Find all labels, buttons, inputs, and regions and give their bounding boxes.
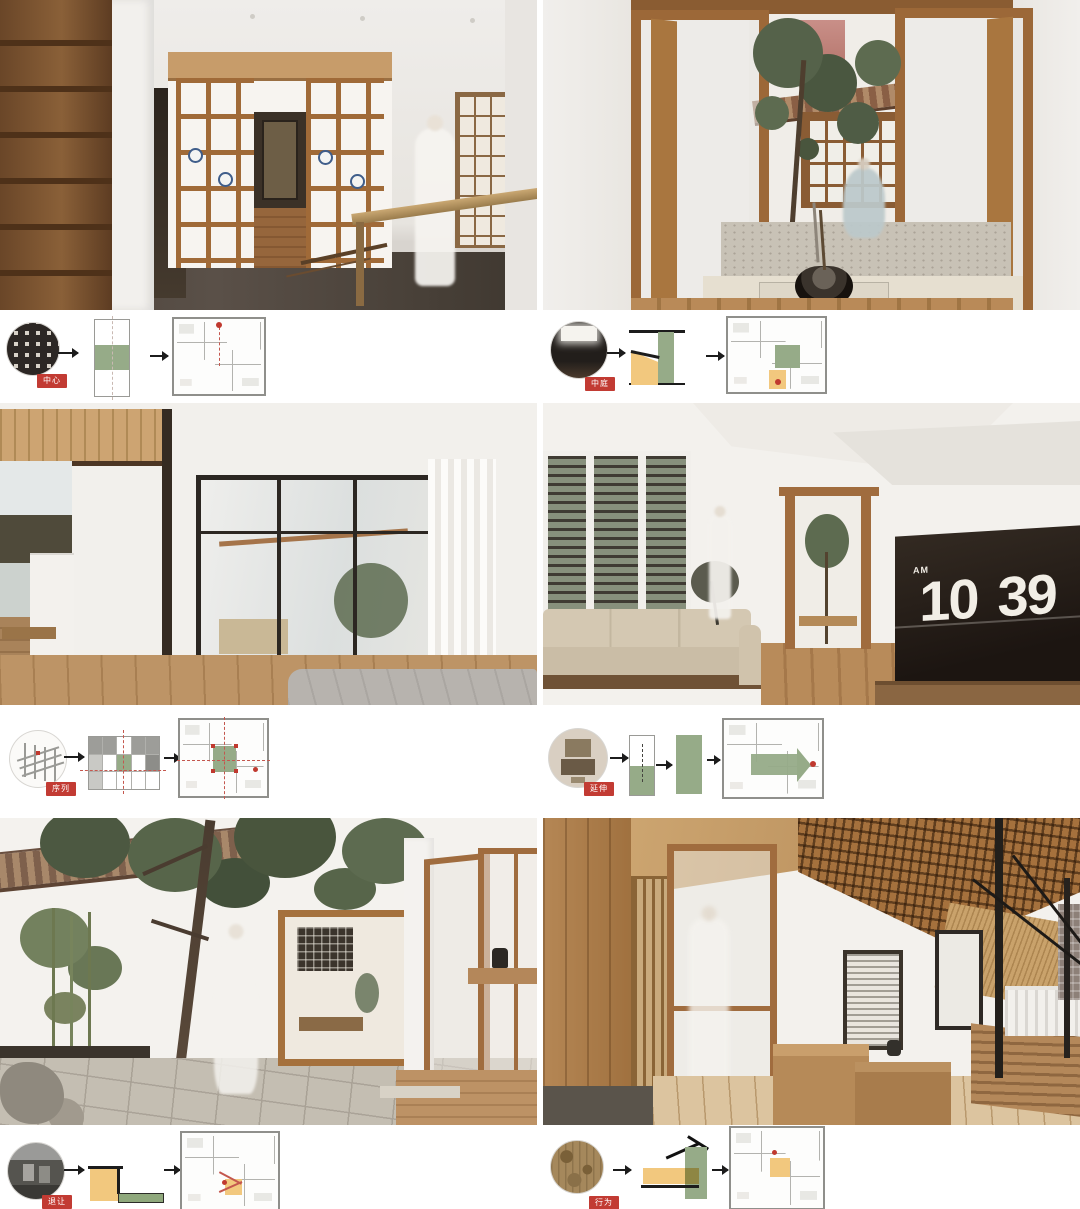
grid-axis-vertical bbox=[123, 730, 124, 794]
plan-red-tick bbox=[234, 744, 238, 748]
white-column bbox=[112, 0, 154, 310]
walking-person-figure bbox=[709, 515, 731, 619]
step-platform bbox=[855, 1062, 951, 1125]
ceiling-downlights bbox=[250, 14, 255, 19]
left-wall bbox=[543, 0, 631, 310]
grid-cell bbox=[103, 737, 116, 754]
concept-badge: 序列 bbox=[46, 782, 76, 796]
plan-walls bbox=[185, 1136, 275, 1206]
porcelain-plate bbox=[218, 172, 233, 187]
right-wall bbox=[505, 0, 537, 310]
render-tree-courtyard bbox=[0, 818, 537, 1125]
tea-room-opening bbox=[254, 112, 306, 208]
render-timber-loft-terrace bbox=[543, 818, 1080, 1125]
green-ledge bbox=[118, 1193, 164, 1203]
model-block bbox=[561, 759, 595, 775]
grid-cell bbox=[132, 755, 145, 772]
arrow-icon bbox=[706, 355, 724, 357]
glass-mullion bbox=[277, 480, 281, 678]
grid-cell bbox=[89, 755, 102, 772]
concept-thumb-antique-map bbox=[551, 1141, 603, 1193]
diagram-nine-grid bbox=[88, 736, 160, 790]
inner-wood-floor bbox=[254, 208, 306, 268]
axon-line bbox=[24, 743, 26, 777]
right-window bbox=[935, 930, 983, 1030]
wardrobe-grain bbox=[543, 818, 631, 1125]
floor-plan-2 bbox=[726, 316, 827, 394]
plan-red-axis bbox=[219, 327, 220, 366]
arrow-icon bbox=[712, 1169, 728, 1171]
tree-foliage bbox=[753, 18, 823, 88]
reflected-tree bbox=[334, 563, 408, 638]
sofa-base bbox=[543, 675, 761, 689]
arrow-icon bbox=[164, 1169, 180, 1171]
bamboo-stem bbox=[52, 908, 55, 1058]
grid-cell bbox=[132, 737, 145, 754]
floor-plan-4 bbox=[722, 718, 824, 799]
concept-thumb-axonometric bbox=[10, 731, 66, 787]
person-head bbox=[229, 924, 244, 939]
diagram-full-green-bar bbox=[676, 735, 702, 794]
lattice-top-band bbox=[168, 52, 392, 81]
presentation-board: 中心 中庭 bbox=[0, 0, 1080, 1209]
low-bench bbox=[799, 616, 857, 626]
green-core bbox=[658, 332, 674, 383]
arrow-icon bbox=[613, 1169, 631, 1171]
low-tea-table bbox=[299, 1017, 363, 1031]
grid-cell bbox=[146, 755, 159, 772]
concept-badge: 行为 bbox=[589, 1196, 619, 1209]
person-head bbox=[715, 506, 726, 517]
arrow-icon bbox=[64, 1169, 84, 1171]
inner-dashed-arrow bbox=[642, 744, 643, 782]
teapot-on-step bbox=[887, 1040, 901, 1056]
grid-cell bbox=[146, 772, 159, 789]
clock-digits: 10 39 bbox=[895, 559, 1080, 635]
lattice-tower-left bbox=[176, 78, 254, 268]
model-block bbox=[571, 777, 585, 783]
door-leaf bbox=[651, 19, 677, 310]
person-head bbox=[427, 115, 443, 131]
shelf-lines bbox=[0, 0, 112, 310]
concept-badge: 延伸 bbox=[584, 782, 614, 796]
yellow-band bbox=[643, 1168, 699, 1184]
render-bedroom-glass-partition bbox=[0, 403, 537, 705]
grid-axis-horizontal bbox=[80, 770, 166, 771]
pergola-post bbox=[785, 491, 795, 649]
diagram-section-wedge bbox=[631, 330, 683, 385]
photo-highlight bbox=[23, 1164, 34, 1181]
concept-thumb-facade bbox=[7, 323, 59, 375]
floor-plan-1 bbox=[172, 317, 266, 396]
concept-badge: 中心 bbox=[37, 374, 67, 388]
wood-wardrobe bbox=[543, 818, 631, 1125]
glass-transom bbox=[201, 531, 431, 534]
pergola-interior bbox=[795, 496, 861, 648]
blurred-person-figure bbox=[214, 936, 258, 1094]
grid-cell bbox=[103, 772, 116, 789]
diagram-setback bbox=[88, 1163, 164, 1203]
bed-blanket bbox=[288, 669, 537, 705]
kettle bbox=[492, 948, 508, 968]
arrow-icon bbox=[64, 756, 84, 758]
deck-strip bbox=[631, 298, 1013, 310]
model-block bbox=[565, 739, 591, 757]
porcelain-plate bbox=[188, 148, 203, 163]
steel-column bbox=[1064, 878, 1070, 1058]
sofa-armrest bbox=[739, 625, 761, 685]
plan-red-tick bbox=[234, 769, 238, 773]
render-display-lattice-tea-room bbox=[0, 0, 537, 310]
plan-red-tick bbox=[211, 744, 215, 748]
arrow-icon bbox=[610, 757, 628, 759]
concept-thumb-dark-interior bbox=[551, 322, 607, 378]
arrow-icon bbox=[150, 355, 168, 357]
porcelain-plate bbox=[318, 150, 333, 165]
threshold-step bbox=[380, 1086, 460, 1098]
wood-slat-ceiling bbox=[0, 409, 168, 466]
interior-plant bbox=[355, 973, 379, 1013]
lattice-tower-right bbox=[306, 78, 384, 268]
glass-wall bbox=[196, 475, 436, 683]
axon-red-accent bbox=[36, 751, 40, 755]
plan-red-tick bbox=[211, 769, 215, 773]
porcelain-plate bbox=[350, 174, 365, 189]
plan-red-dot bbox=[775, 379, 781, 385]
yellow-block bbox=[90, 1168, 118, 1201]
person-head bbox=[702, 906, 717, 921]
person-head bbox=[858, 158, 870, 170]
handrail-post bbox=[356, 222, 364, 306]
floor-plan-3 bbox=[178, 718, 269, 798]
arrow-icon bbox=[58, 352, 78, 354]
concept-badge: 中庭 bbox=[585, 377, 615, 391]
glass-mullion bbox=[353, 480, 357, 678]
tea-room-window bbox=[278, 910, 418, 1066]
render-courtyard-atrium-tree bbox=[543, 0, 1080, 310]
grid-cell bbox=[132, 772, 145, 789]
seated-person-figure bbox=[843, 168, 885, 238]
grid-cell bbox=[103, 755, 116, 772]
slab-line-top bbox=[629, 330, 685, 333]
axis-dashed-line bbox=[112, 316, 113, 400]
plan-green-arrow-shaft bbox=[751, 754, 796, 776]
steel-column bbox=[995, 818, 1003, 1078]
arrow-icon bbox=[707, 759, 720, 761]
plan-green-arrow-head bbox=[797, 748, 811, 782]
plan-red-axis-h bbox=[177, 760, 271, 761]
landscape-painting bbox=[262, 120, 298, 200]
concept-thumb-street-photo bbox=[8, 1143, 64, 1199]
plan-green-zone bbox=[775, 345, 800, 369]
plan-yellow-room bbox=[770, 1158, 790, 1176]
render-lounge-flip-clock: AM 10 39 bbox=[543, 403, 1080, 705]
arrow-icon bbox=[607, 352, 625, 354]
balcony-sky-view bbox=[0, 461, 72, 521]
arrow-icon bbox=[656, 764, 672, 766]
wood-bookshelf bbox=[0, 0, 118, 310]
grid-cell bbox=[146, 737, 159, 754]
concept-badge: 退让 bbox=[42, 1195, 72, 1209]
base-line bbox=[641, 1185, 699, 1188]
clock-platform bbox=[875, 681, 1080, 705]
concept-thumb-model-top-view bbox=[549, 729, 607, 787]
tea-counter bbox=[468, 968, 537, 984]
grid-cell bbox=[89, 772, 102, 789]
floor-plan-6 bbox=[729, 1126, 825, 1209]
floor-plan-5 bbox=[180, 1131, 280, 1209]
flip-clock-sign: AM 10 39 bbox=[895, 525, 1080, 705]
white-curtain bbox=[428, 459, 496, 673]
diagram-roof-section bbox=[638, 1128, 710, 1192]
back-lattice-window bbox=[297, 927, 353, 971]
diagram-center-band bbox=[94, 319, 130, 397]
diagram-half-green-bar bbox=[629, 735, 655, 796]
tree-trunk bbox=[825, 552, 828, 644]
glowing-window bbox=[561, 326, 597, 341]
black-right-edge bbox=[117, 1166, 120, 1194]
bamboo-leaves bbox=[20, 908, 90, 968]
plan-red-axis-v bbox=[224, 717, 225, 799]
pergola-post bbox=[861, 491, 871, 649]
shoji-screen bbox=[455, 92, 511, 248]
grid-cell bbox=[89, 737, 102, 754]
wood-bench bbox=[2, 627, 56, 639]
plan-red-dot bbox=[810, 761, 816, 767]
center-window-blind bbox=[843, 950, 903, 1050]
